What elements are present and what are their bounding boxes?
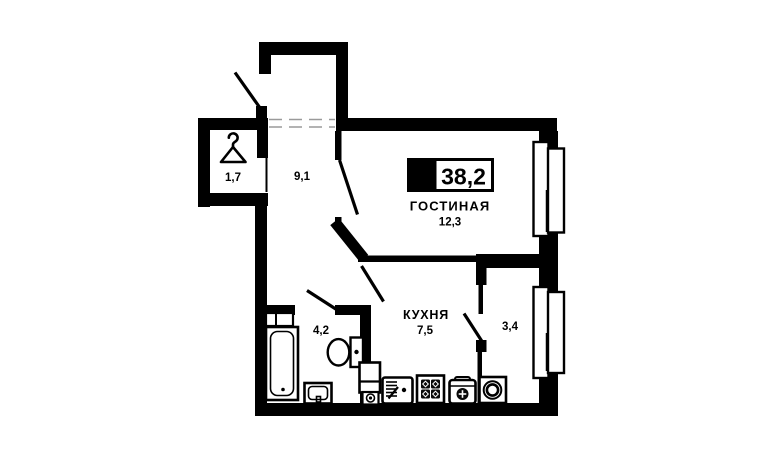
- boiler-icon: [363, 392, 379, 405]
- entrance-door-leaf: [235, 73, 262, 111]
- stove-frame: [417, 376, 444, 404]
- room-label-kitchen: 7,5: [417, 325, 434, 337]
- hanger-icon: [221, 133, 246, 162]
- washing-machine-icon: [480, 377, 507, 403]
- hanger-body: [221, 147, 246, 162]
- stove-icon: [417, 376, 444, 404]
- wall-segment: [335, 305, 360, 315]
- water-heater-icon: [450, 377, 476, 404]
- wall-segment-diagonal: [338, 226, 361, 254]
- wall-segment: [358, 256, 486, 263]
- badge-rooms-count: 1: [414, 163, 427, 189]
- room-label-bathroom: 4,2: [313, 325, 329, 337]
- kitchen-door-leaf: [362, 266, 384, 302]
- bathtub-drain: [281, 388, 285, 392]
- room-label-hallway: 9,1: [294, 171, 311, 183]
- wall-segment: [479, 285, 484, 314]
- window-icon: [534, 287, 565, 378]
- room-name-kitchen: КУХНЯ: [403, 308, 449, 322]
- wall-segment: [255, 403, 558, 416]
- window-frame: [548, 292, 564, 373]
- toilet-icon: [328, 338, 363, 368]
- badge-total-area: 38,2: [441, 164, 486, 190]
- area-badge: 1 38,2: [407, 158, 493, 192]
- window-frame: [548, 149, 564, 233]
- wall-segment: [257, 128, 268, 158]
- living-room-door-leaf: [340, 160, 358, 215]
- boiler-dot: [369, 396, 372, 399]
- washer-door-inner: [487, 384, 498, 395]
- cabinet-frame: [360, 363, 381, 393]
- wall-segment: [259, 42, 348, 55]
- wall-segment: [198, 193, 268, 206]
- kitchen-sink-icon: [383, 378, 413, 404]
- room-label-loggia: 3,4: [502, 321, 519, 333]
- shelf-frame: [266, 313, 293, 326]
- bathroom-door-leaf: [307, 291, 337, 310]
- wall-segment: [486, 254, 539, 268]
- toilet-bowl: [328, 339, 350, 365]
- wall-segment: [336, 55, 348, 119]
- washbasin-icon: [305, 383, 332, 404]
- wall-segment: [335, 131, 342, 160]
- loggia-door-leaf: [464, 314, 484, 345]
- room-label-living: 12,3: [439, 217, 461, 229]
- room-label-wardrobe: 1,7: [225, 172, 241, 184]
- window-icon: [534, 142, 565, 236]
- toilet-button: [354, 350, 358, 354]
- wall-segment: [476, 254, 487, 285]
- cabinet-icon: [360, 363, 381, 393]
- hanger-hook: [229, 133, 238, 147]
- room-name-living: ГОСТИНАЯ: [410, 199, 491, 214]
- shelf-icon: [266, 313, 293, 326]
- wall-segment: [259, 55, 271, 74]
- entry-dashed-boundary: [269, 120, 335, 128]
- bathtub-icon: [266, 327, 298, 400]
- wall-segment: [336, 118, 557, 131]
- floor-plan: 1 38,2 1,7 9,1 ГОСТИНАЯ 12,3 4,2 КУХНЯ 7…: [0, 0, 762, 463]
- floor-plan-page: 1 38,2 1,7 9,1 ГОСТИНАЯ 12,3 4,2 КУХНЯ 7…: [0, 0, 762, 463]
- sink-drain: [402, 388, 406, 392]
